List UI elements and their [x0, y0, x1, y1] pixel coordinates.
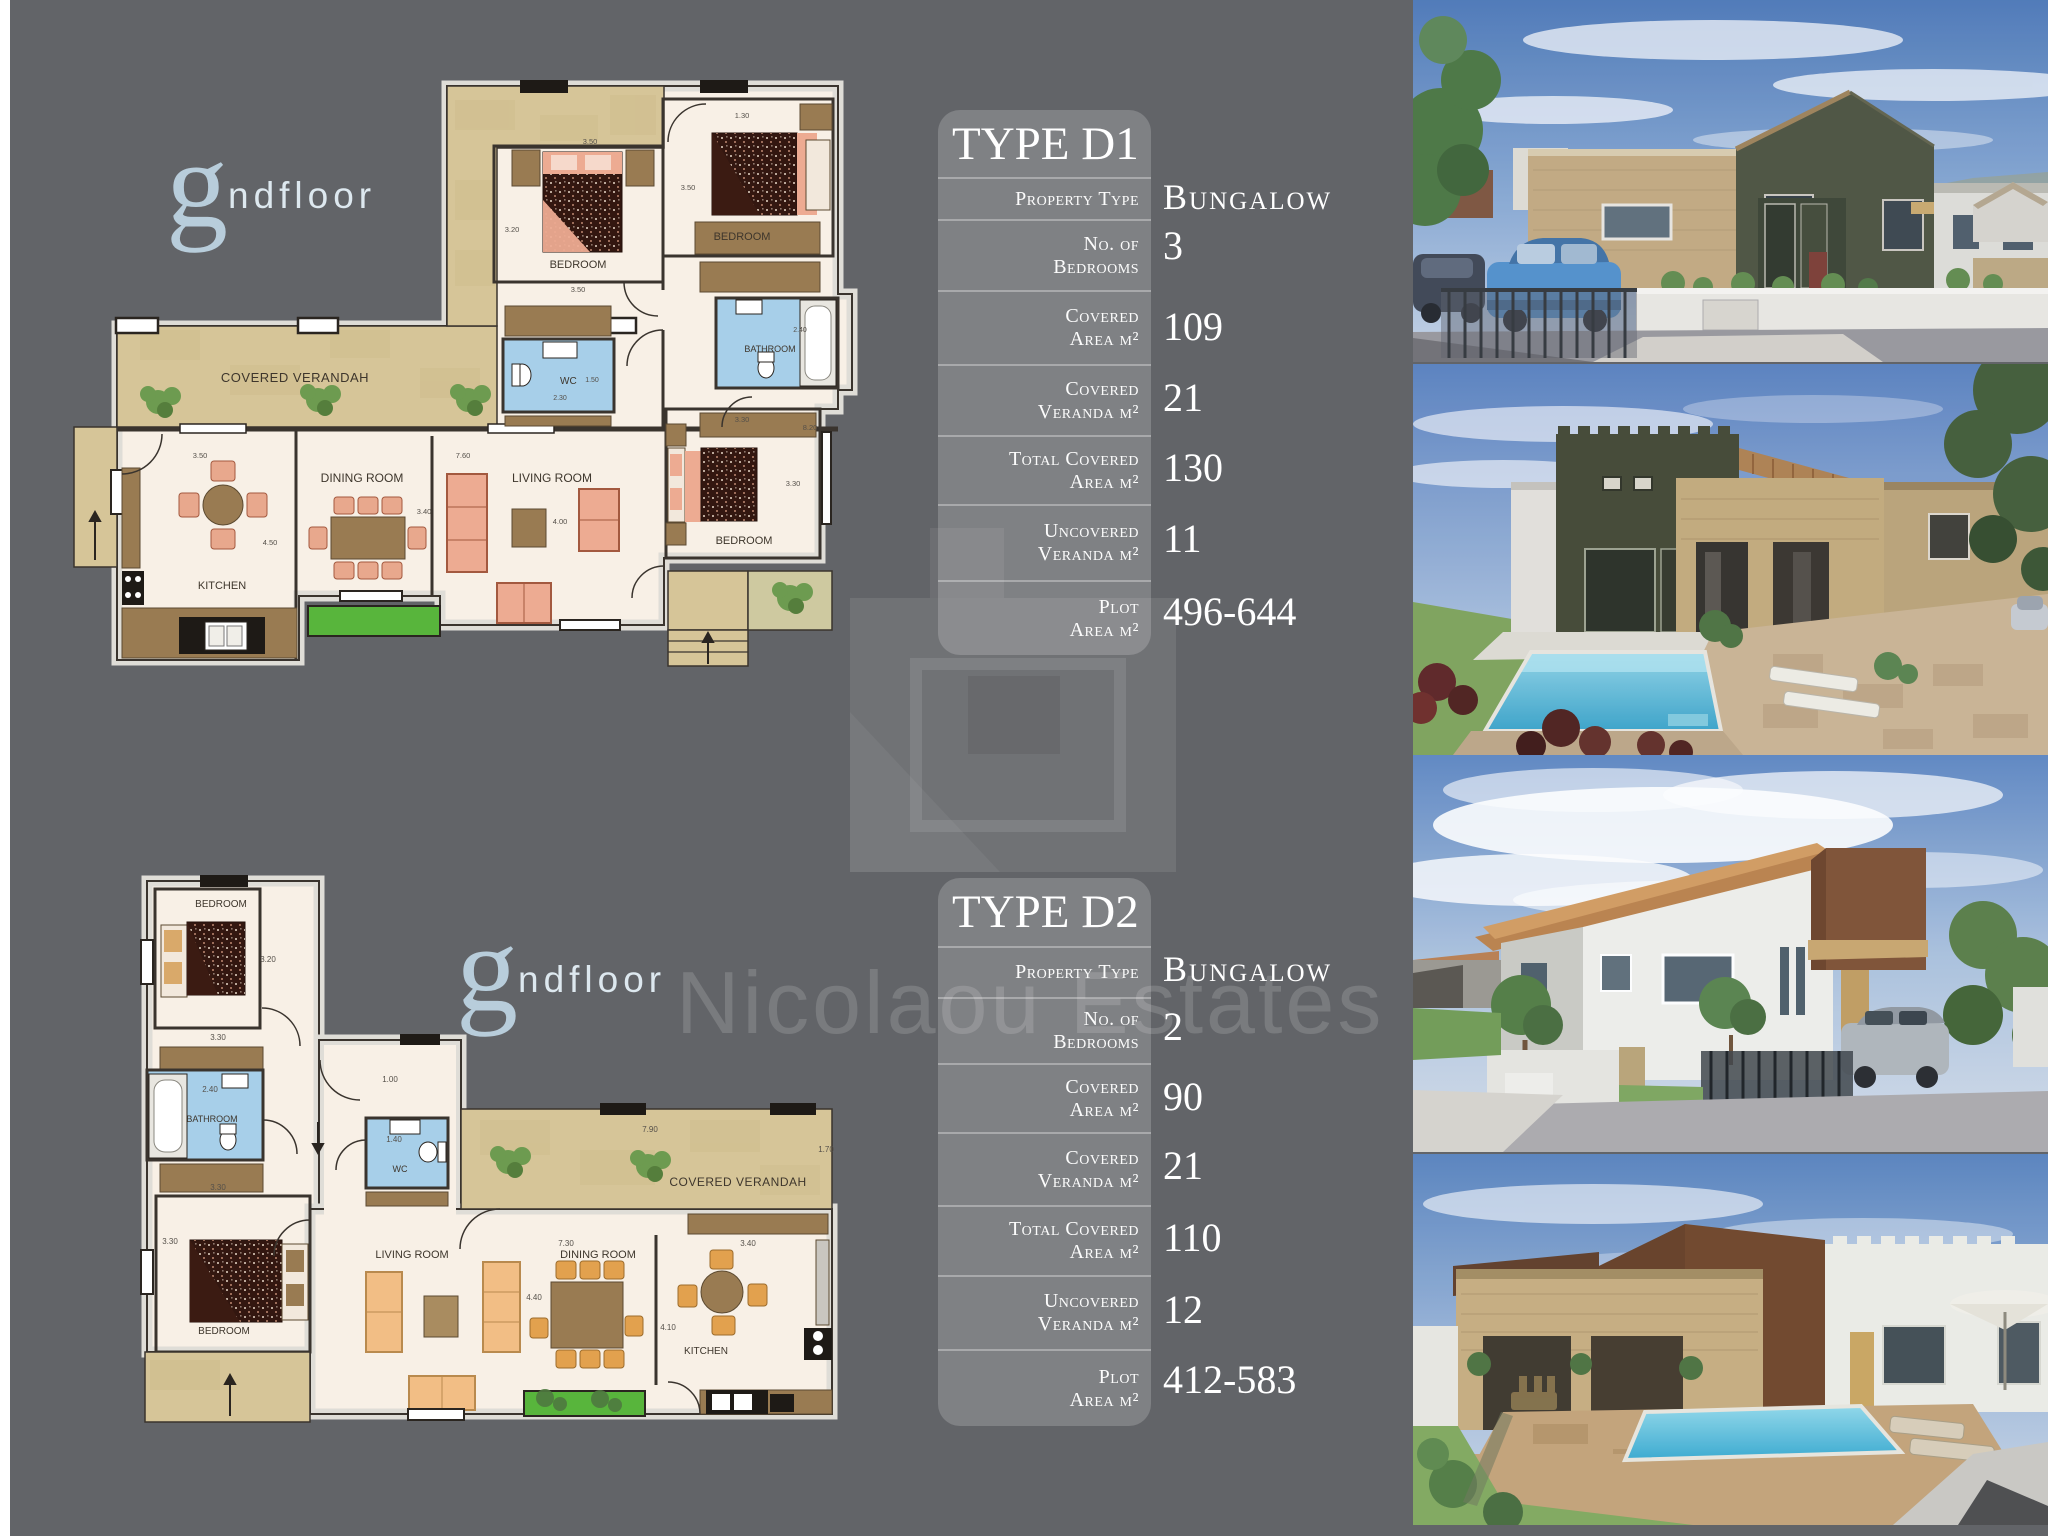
- svg-text:3.30: 3.30: [786, 479, 801, 488]
- svg-text:3.50: 3.50: [583, 137, 598, 146]
- svg-text:WC: WC: [393, 1164, 408, 1174]
- svg-text:BEDROOM: BEDROOM: [198, 1326, 250, 1337]
- svg-text:4.50: 4.50: [263, 538, 278, 547]
- svg-text:4.10: 4.10: [660, 1323, 676, 1332]
- svg-text:BATHROOM: BATHROOM: [744, 344, 795, 354]
- svg-text:KITCHEN: KITCHEN: [684, 1346, 728, 1357]
- svg-text:COVERED VERANDAH: COVERED VERANDAH: [669, 1175, 806, 1189]
- svg-text:1.70: 1.70: [818, 1145, 834, 1154]
- svg-text:1.40: 1.40: [386, 1135, 402, 1144]
- svg-text:3.20: 3.20: [260, 955, 276, 964]
- svg-text:COVERED VERANDAH: COVERED VERANDAH: [221, 370, 369, 385]
- svg-text:1.50: 1.50: [585, 377, 599, 384]
- svg-text:2.30: 2.30: [553, 395, 567, 402]
- svg-text:DINING ROOM: DINING ROOM: [321, 471, 404, 485]
- svg-text:DINING ROOM: DINING ROOM: [560, 1249, 636, 1261]
- svg-text:7.60: 7.60: [456, 451, 471, 460]
- svg-text:LIVING ROOM: LIVING ROOM: [375, 1249, 448, 1261]
- svg-text:LIVING ROOM: LIVING ROOM: [512, 471, 592, 485]
- svg-text:1.30: 1.30: [735, 111, 750, 120]
- svg-text:WC: WC: [560, 376, 577, 387]
- svg-text:3.30: 3.30: [162, 1237, 178, 1246]
- svg-text:1.00: 1.00: [382, 1075, 398, 1084]
- svg-text:3.30: 3.30: [210, 1183, 226, 1192]
- svg-text:BEDROOM: BEDROOM: [716, 535, 773, 547]
- svg-text:3.50: 3.50: [681, 183, 696, 192]
- svg-text:KITCHEN: KITCHEN: [198, 580, 246, 592]
- svg-text:3.50: 3.50: [571, 285, 586, 294]
- svg-text:3.40: 3.40: [740, 1239, 756, 1248]
- svg-text:2.40: 2.40: [793, 327, 807, 334]
- svg-text:3.40: 3.40: [417, 507, 432, 516]
- svg-text:4.40: 4.40: [526, 1293, 542, 1302]
- svg-text:3.30: 3.30: [735, 415, 750, 424]
- svg-text:8.20: 8.20: [803, 423, 818, 432]
- svg-text:7.30: 7.30: [558, 1239, 574, 1248]
- svg-text:BATHROOM: BATHROOM: [186, 1114, 237, 1124]
- svg-text:BEDROOM: BEDROOM: [195, 899, 247, 910]
- svg-text:4.00: 4.00: [553, 517, 568, 526]
- svg-text:3.30: 3.30: [210, 1033, 226, 1042]
- svg-text:7.90: 7.90: [642, 1125, 658, 1134]
- svg-text:3.20: 3.20: [505, 225, 520, 234]
- svg-text:BEDROOM: BEDROOM: [714, 231, 771, 243]
- svg-text:2.40: 2.40: [202, 1085, 218, 1094]
- svg-text:BEDROOM: BEDROOM: [550, 259, 607, 271]
- svg-text:3.50: 3.50: [193, 451, 208, 460]
